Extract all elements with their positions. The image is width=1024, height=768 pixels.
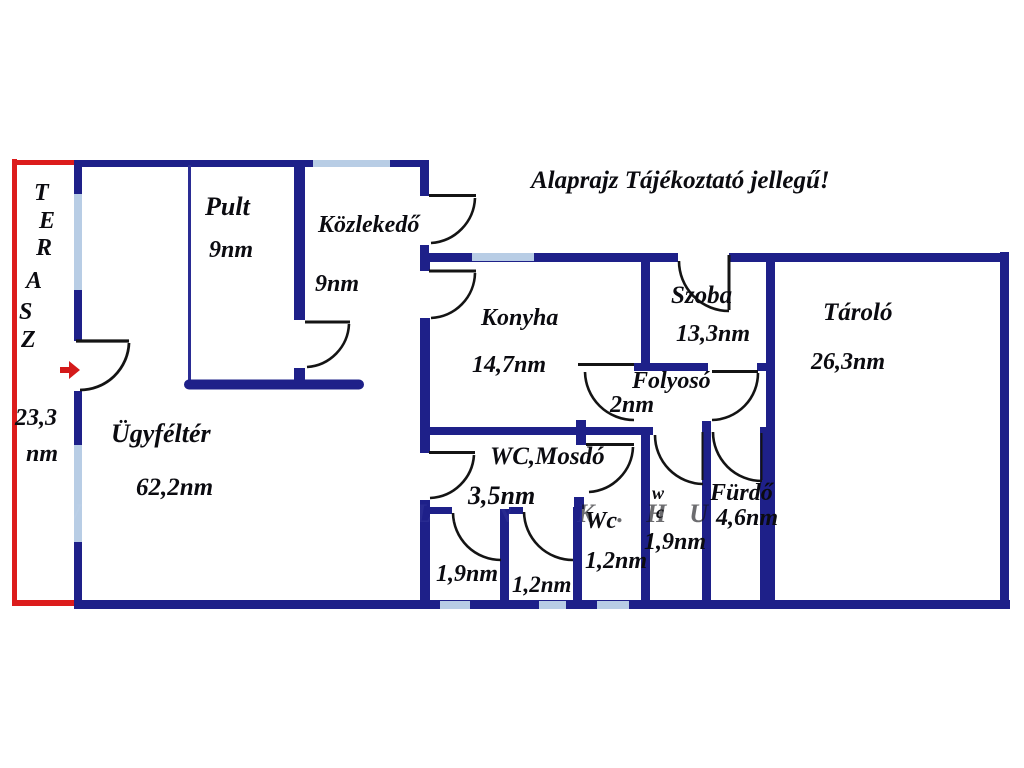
svg-text:Z: Z <box>20 327 36 353</box>
svg-text:Konyha: Konyha <box>480 305 558 331</box>
svg-text:23,3: 23,3 <box>14 405 57 431</box>
svg-text:nm: nm <box>26 441 58 467</box>
svg-text:9nm: 9nm <box>315 271 359 297</box>
svg-text:Folyosó: Folyosó <box>631 368 711 394</box>
svg-text:c: c <box>656 502 664 522</box>
svg-text:9nm: 9nm <box>209 237 253 263</box>
svg-text:R: R <box>35 235 52 261</box>
svg-text:13,3nm: 13,3nm <box>676 321 750 347</box>
svg-text:S: S <box>19 299 32 325</box>
svg-text:WC,Mosdó: WC,Mosdó <box>490 443 605 470</box>
svg-text:4,6nm: 4,6nm <box>715 505 778 531</box>
svg-text:1,2nm: 1,2nm <box>512 572 571 597</box>
svg-text:Tároló: Tároló <box>823 299 892 326</box>
svg-text:Szoba: Szoba <box>671 282 732 309</box>
svg-text:Wc: Wc <box>585 508 617 534</box>
svg-text:1,9nm: 1,9nm <box>436 561 498 587</box>
svg-text:Ügyféltér: Ügyféltér <box>111 419 212 448</box>
svg-text:T: T <box>34 180 50 206</box>
svg-text:26,3nm: 26,3nm <box>810 349 885 375</box>
svg-text:E: E <box>38 208 55 234</box>
svg-text:Közlekedő: Közlekedő <box>317 212 421 238</box>
svg-text:Fürdő: Fürdő <box>709 480 775 506</box>
svg-text:w: w <box>652 483 665 503</box>
svg-text:1,9nm: 1,9nm <box>644 529 706 555</box>
svg-text:14,7nm: 14,7nm <box>472 352 546 378</box>
svg-text:A: A <box>24 268 42 294</box>
svg-text:1,2nm: 1,2nm <box>585 548 647 574</box>
svg-text:3,5nm: 3,5nm <box>467 481 535 510</box>
svg-text:2nm: 2nm <box>609 392 654 418</box>
svg-text:Pult: Pult <box>204 192 251 221</box>
svg-text:Alaprajz Tájékoztató jellegű!: Alaprajz Tájékoztató jellegű! <box>529 167 830 194</box>
svg-text:62,2nm: 62,2nm <box>136 474 213 501</box>
